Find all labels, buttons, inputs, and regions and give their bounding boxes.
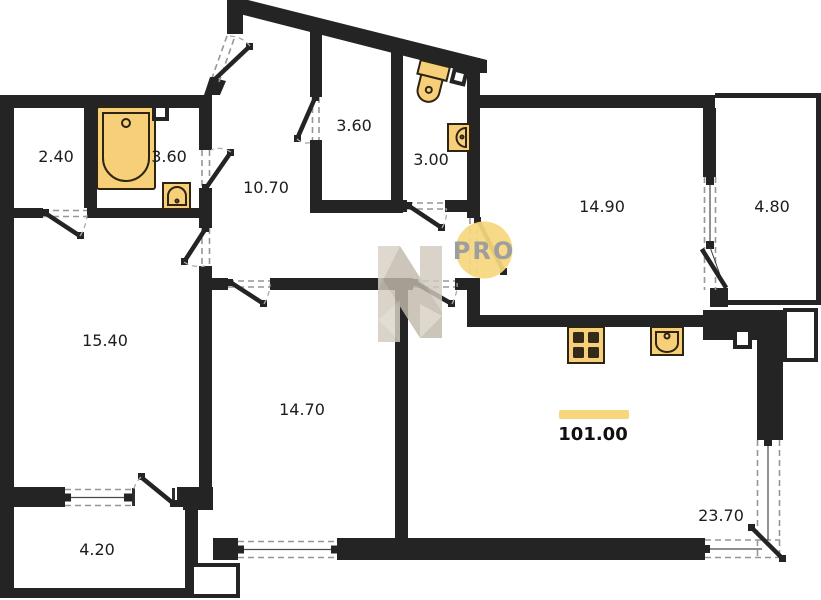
room-label-bathroom: 3.60 [151,147,187,166]
entrance-door [211,36,253,84]
door-wc [405,202,447,231]
kitchen-sink-icon [651,327,683,355]
corner-window-living [748,438,786,562]
room-label-bedroom-bottom: 14.70 [279,400,325,419]
room-label-hallway: 10.70 [243,178,289,197]
room-label-balcony-left: 4.20 [79,540,115,559]
total-area-highlight [559,410,629,419]
watermark-badge-text: PRO [453,237,515,265]
room-label-wc: 3.00 [413,150,449,169]
door-closet [42,209,87,239]
room-label-living-kitchen: 23.70 [698,506,744,525]
stove-icon [568,327,604,363]
watermark-logo [378,246,442,342]
room-label-closet: 2.40 [38,147,74,166]
exterior-ledge-bottom [192,565,238,596]
total-area-value: 101.00 [558,424,627,445]
door-bathroom [202,148,234,191]
toilet-icon [411,60,450,105]
door-wardrobe-top [294,94,319,143]
total-area: 101.00 [558,410,629,445]
door-bedroom-bottom [226,279,270,307]
room-label-balcony-right: 4.80 [754,197,790,216]
room-label-bedroom-left: 15.40 [82,331,128,350]
balcony-door-bedroom-right [703,177,725,290]
window-bedroom-bottom [236,542,339,558]
bathtub-icon [97,107,155,189]
window-bedroom-left [63,490,132,506]
bathroom-sink-icon [163,183,190,209]
room-label-wardrobe-top: 3.60 [336,116,372,135]
vent-bathroom [154,106,167,119]
balcony-door-bedroom-left [132,473,177,507]
vent-wc [452,70,467,85]
wc-sink-icon [448,124,470,151]
floor-plan: PRO 2.40 3.60 10.70 3.60 3.00 14.90 4.80… [0,0,821,600]
exterior-ledge-right [785,310,816,360]
floor-plan-page: PRO 2.40 3.60 10.70 3.60 3.00 14.90 4.80… [0,0,821,600]
room-label-bedroom-right: 14.90 [579,197,625,216]
vent-kitchen [735,330,750,347]
door-bedroom-left [181,225,210,267]
